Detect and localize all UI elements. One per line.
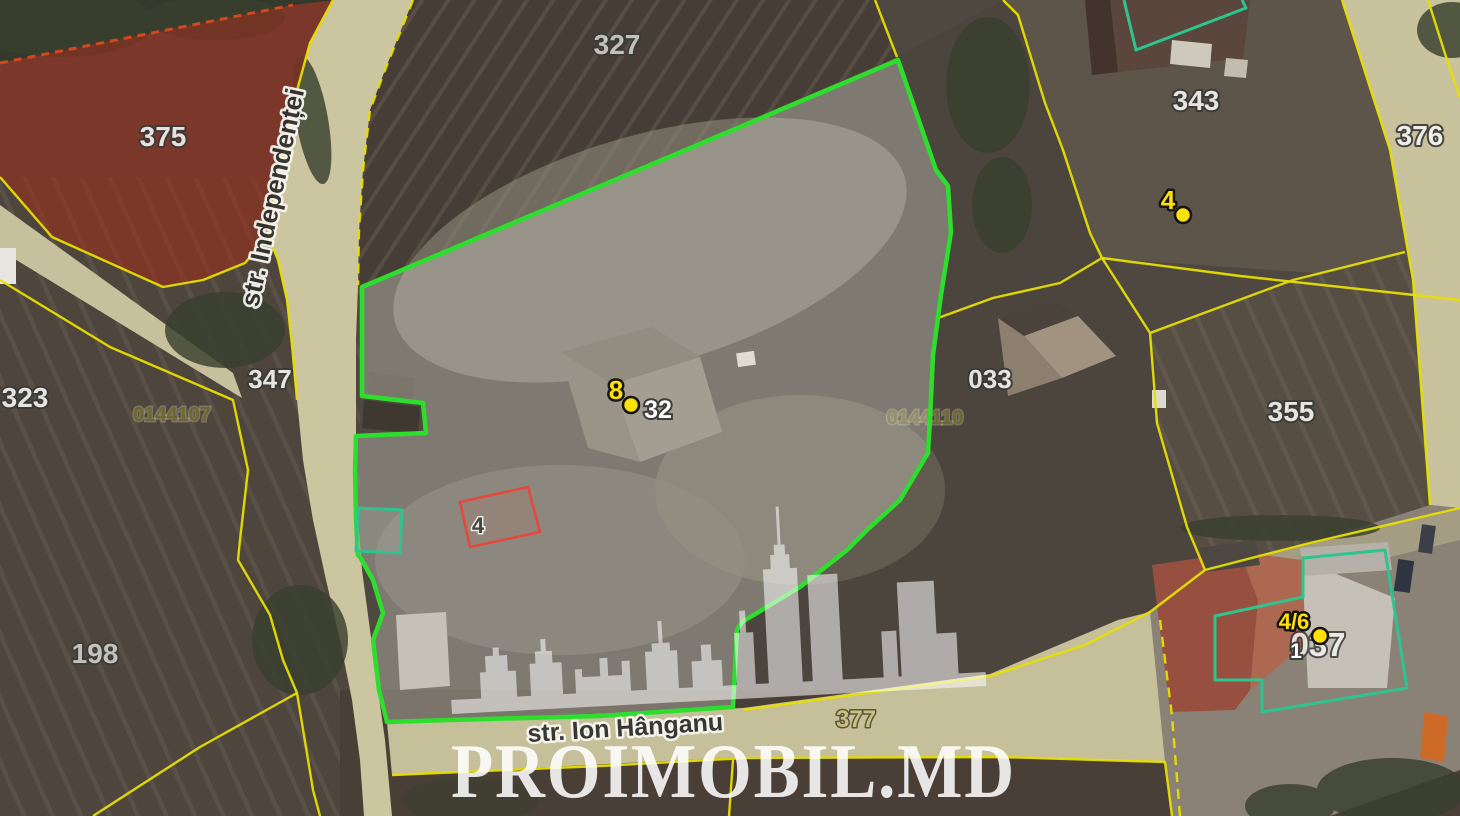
marker-4-number: 4	[1161, 185, 1176, 215]
marker-8-dot	[623, 397, 639, 413]
building-white-left	[0, 248, 16, 284]
satellite-map-canvas: 375 327 343 376 323 347 355 033 198 377 …	[0, 0, 1460, 816]
cadastral-map: 375 327 343 376 323 347 355 033 198 377 …	[0, 0, 1460, 816]
cadastral-code-0144107: 0144107	[133, 404, 211, 426]
marker-8-house: 32	[644, 396, 672, 424]
parcel-label-355: 355	[1268, 396, 1315, 427]
parcel-label-375: 375	[140, 121, 187, 152]
marker-4-dot	[1175, 207, 1191, 223]
marker-4-6-number: 4/6	[1279, 609, 1310, 634]
marker-4-6-dot	[1312, 628, 1328, 644]
watermark-brand: PROIMOBIL.MD	[451, 728, 1016, 814]
marker-8-number: 8	[609, 375, 623, 405]
parcel-label-376: 376	[1397, 120, 1444, 151]
parcel-label-033: 033	[968, 364, 1011, 394]
parcel-label-327: 327	[594, 29, 641, 60]
parcel-label-347: 347	[248, 364, 291, 394]
parcel-label-343: 343	[1173, 85, 1220, 116]
parcel-label-198: 198	[72, 638, 119, 669]
plot-red-label: 4	[472, 513, 485, 538]
shed-orange	[1420, 712, 1448, 762]
building-outline-shed	[356, 508, 402, 553]
marker-4-6-house: 1	[1290, 640, 1302, 663]
parcel-label-323: 323	[2, 382, 49, 413]
